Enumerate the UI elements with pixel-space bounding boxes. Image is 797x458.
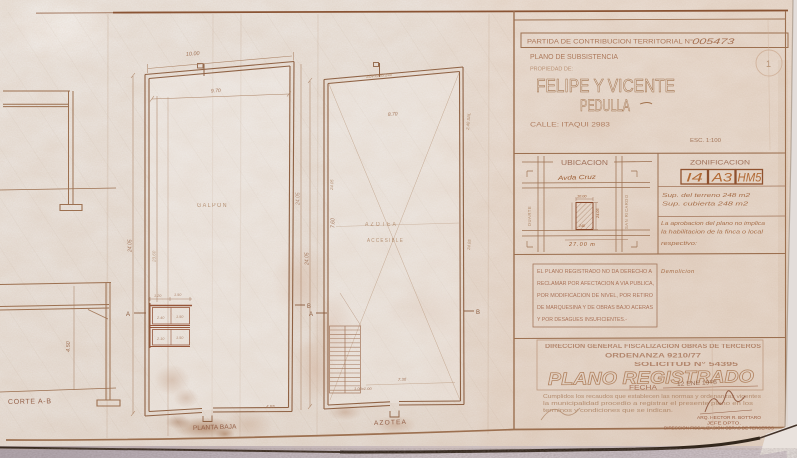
svg-text:FELIPE Y VICENTE: FELIPE Y VICENTE [536, 76, 675, 96]
svg-text:UBICACION: UBICACION [561, 160, 608, 167]
svg-text:Y POR DESAGUES INSUFICIENTES.-: Y POR DESAGUES INSUFICIENTES.- [537, 317, 627, 323]
svg-text:ZONIFICACION: ZONIFICACION [690, 160, 750, 167]
svg-text:SAN RICARDO: SAN RICARDO [624, 194, 629, 229]
svg-text:ARQ. HECTOR R. BOTTARO: ARQ. HECTOR R. BOTTARO [697, 415, 762, 420]
svg-text:24.05: 24.05 [296, 192, 302, 206]
svg-text:A3: A3 [711, 173, 733, 185]
svg-text:1.50: 1.50 [174, 293, 182, 297]
svg-text:ORDENANZA 9210/77: ORDENANZA 9210/77 [605, 354, 702, 360]
svg-text:ACCESIBLE: ACCESIBLE [367, 238, 404, 244]
svg-text:DUARTE: DUARTE [527, 206, 532, 226]
svg-text:HM5: HM5 [738, 173, 763, 185]
svg-text:ESC. 1:100: ESC. 1:100 [690, 138, 721, 144]
svg-text:AZOTEA: AZOTEA [374, 419, 407, 427]
svg-text:AZOTEA: AZOTEA [365, 222, 398, 228]
svg-text:POR MODIFICACION DE NIVEL, POR: POR MODIFICACION DE NIVEL, POR RETIRO [537, 293, 653, 299]
svg-text:24.05: 24.05 [466, 239, 472, 252]
svg-text:23.60: 23.60 [152, 250, 157, 263]
svg-text:248: 248 [578, 224, 585, 228]
svg-text:A: A [309, 312, 313, 318]
svg-text:9.70: 9.70 [211, 88, 221, 95]
svg-text:10.00: 10.00 [577, 195, 587, 199]
svg-text:24.05: 24.05 [596, 208, 600, 219]
svg-text:Sup. cubierta 248 m2: Sup. cubierta 248 m2 [662, 202, 749, 208]
svg-text:La aprobacion del plano no imp: La aprobacion del plano no implica [661, 221, 765, 227]
svg-text:24.05: 24.05 [329, 179, 334, 191]
svg-text:I4: I4 [686, 173, 703, 185]
svg-text:PROPIEDAD DE:: PROPIEDAD DE: [530, 67, 573, 73]
svg-text:1.00x1.00: 1.00x1.00 [354, 386, 372, 391]
svg-text:EL PLANO REGISTRADO NO DA DERE: EL PLANO REGISTRADO NO DA DERECHO A [537, 269, 652, 275]
svg-text:RECLAMAR POR AFECTACION A VIA: RECLAMAR POR AFECTACION A VIA PUBLICA, [537, 281, 654, 287]
svg-text:005473: 005473 [692, 37, 736, 46]
svg-text:8.70: 8.70 [388, 111, 398, 118]
svg-text:GALPON: GALPON [197, 203, 228, 209]
svg-text:27.00 m: 27.00 m [568, 242, 596, 248]
svg-text:CORTE A-B: CORTE A-B [8, 398, 53, 406]
svg-text:24.05: 24.05 [305, 252, 311, 266]
svg-text:4.50: 4.50 [66, 340, 72, 352]
svg-text:B: B [476, 310, 480, 316]
svg-text:1.50: 1.50 [176, 336, 184, 340]
svg-text:Cumplidos los recaudos que: Cumplidos los recaudos que establecen la… [543, 394, 762, 400]
svg-text:DIRECCION GENERAL FISCALIZACIO: DIRECCION GENERAL FISCALIZACION OBRAS DE… [545, 344, 761, 350]
svg-text:FECHA: FECHA [629, 386, 657, 392]
svg-text:4.55: 4.55 [266, 404, 275, 409]
svg-text:A: A [126, 312, 130, 318]
svg-text:respectivo:: respectivo: [661, 241, 698, 247]
svg-text:Sup. del terreno 248 m2: Sup. del terreno 248 m2 [662, 193, 751, 199]
svg-text:DE MARQUESINA Y DE OBRAS BAJO: DE MARQUESINA Y DE OBRAS BAJO ACERAS [537, 305, 653, 311]
svg-text:2.40: 2.40 [156, 316, 165, 320]
svg-text:2.10: 2.10 [156, 337, 165, 341]
svg-text:PLANO DE SUBSISTENCIA: PLANO DE SUBSISTENCIA [530, 54, 618, 61]
svg-text:7.30: 7.30 [398, 377, 407, 382]
svg-text:Demolicion: Demolicion [661, 269, 695, 275]
svg-text:PEDULLA: PEDULLA [580, 96, 630, 115]
svg-text:10.00: 10.00 [186, 51, 201, 58]
svg-text:7.60: 7.60 [331, 218, 337, 228]
svg-text:24.05: 24.05 [128, 239, 134, 253]
svg-text:CALLE: ITAQUI 2983: CALLE: ITAQUI 2983 [530, 122, 610, 129]
svg-text:DIRECCION FISCALIZACION OBRAS: DIRECCION FISCALIZACION OBRAS DE TERCERO… [664, 426, 774, 431]
svg-text:B: B [307, 304, 311, 310]
svg-text:1.20: 1.20 [154, 294, 162, 298]
svg-text:1.50: 1.50 [176, 315, 184, 319]
svg-text:PARTIDA DE CONTRIBUCION TER: PARTIDA DE CONTRIBUCION TERRITORIAL N° [527, 38, 693, 46]
svg-text:la habilitacion de la finca o: la habilitacion de la finca o local [661, 230, 764, 236]
